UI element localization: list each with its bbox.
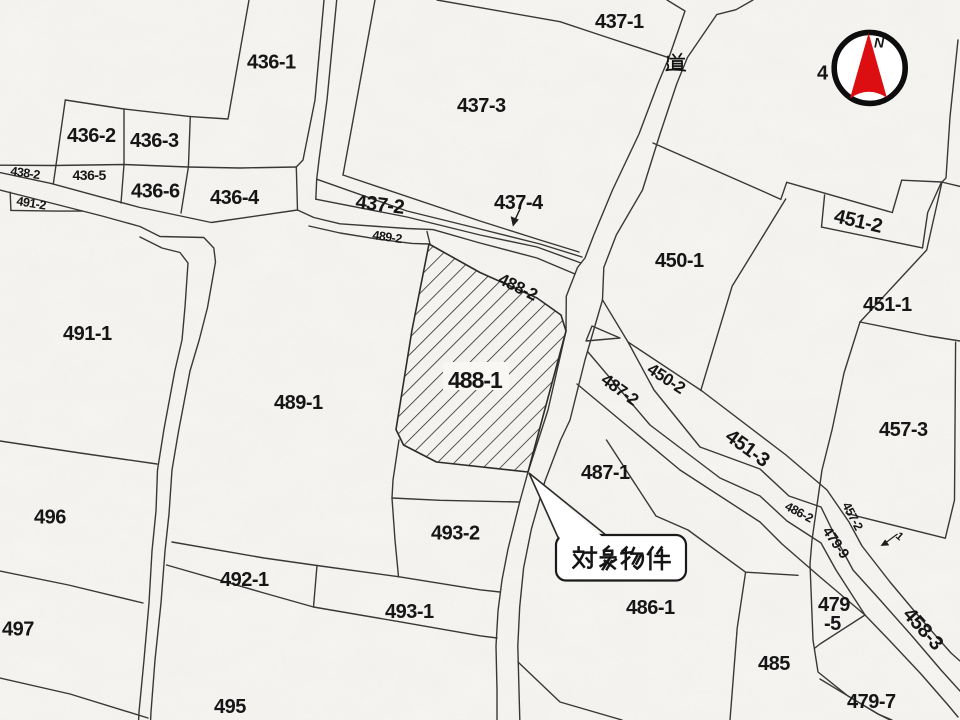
svg-text:437-4: 437-4	[494, 192, 544, 214]
svg-text:4: 4	[817, 63, 829, 85]
svg-text:496: 496	[34, 507, 66, 529]
svg-text:497: 497	[2, 619, 34, 641]
svg-text:491-1: 491-1	[63, 323, 112, 345]
svg-text:436-1: 436-1	[247, 52, 296, 74]
svg-text:436-5: 436-5	[73, 167, 107, 183]
svg-text:437-3: 437-3	[457, 95, 506, 117]
svg-text:486-1: 486-1	[626, 597, 675, 619]
svg-text:450-1: 450-1	[655, 250, 704, 272]
svg-text:436-3: 436-3	[130, 130, 179, 152]
svg-text:485: 485	[758, 653, 790, 675]
svg-text:492-1: 492-1	[220, 569, 269, 591]
svg-text:487-1: 487-1	[581, 462, 630, 484]
svg-text:-5: -5	[824, 613, 841, 635]
svg-text:493-2: 493-2	[431, 523, 480, 545]
svg-text:479-7: 479-7	[847, 691, 896, 713]
svg-text:495: 495	[214, 696, 246, 718]
svg-text:436-6: 436-6	[131, 181, 180, 203]
svg-text:451-1: 451-1	[863, 294, 912, 316]
svg-text:457-3: 457-3	[879, 419, 928, 441]
svg-text:493-1: 493-1	[385, 601, 434, 623]
svg-text:489-1: 489-1	[274, 392, 323, 414]
svg-text:436-2: 436-2	[67, 125, 116, 147]
svg-text:437-1: 437-1	[595, 11, 644, 33]
svg-text:N: N	[874, 35, 885, 51]
svg-text:436-4: 436-4	[210, 187, 260, 209]
svg-text:488-1: 488-1	[448, 367, 503, 393]
